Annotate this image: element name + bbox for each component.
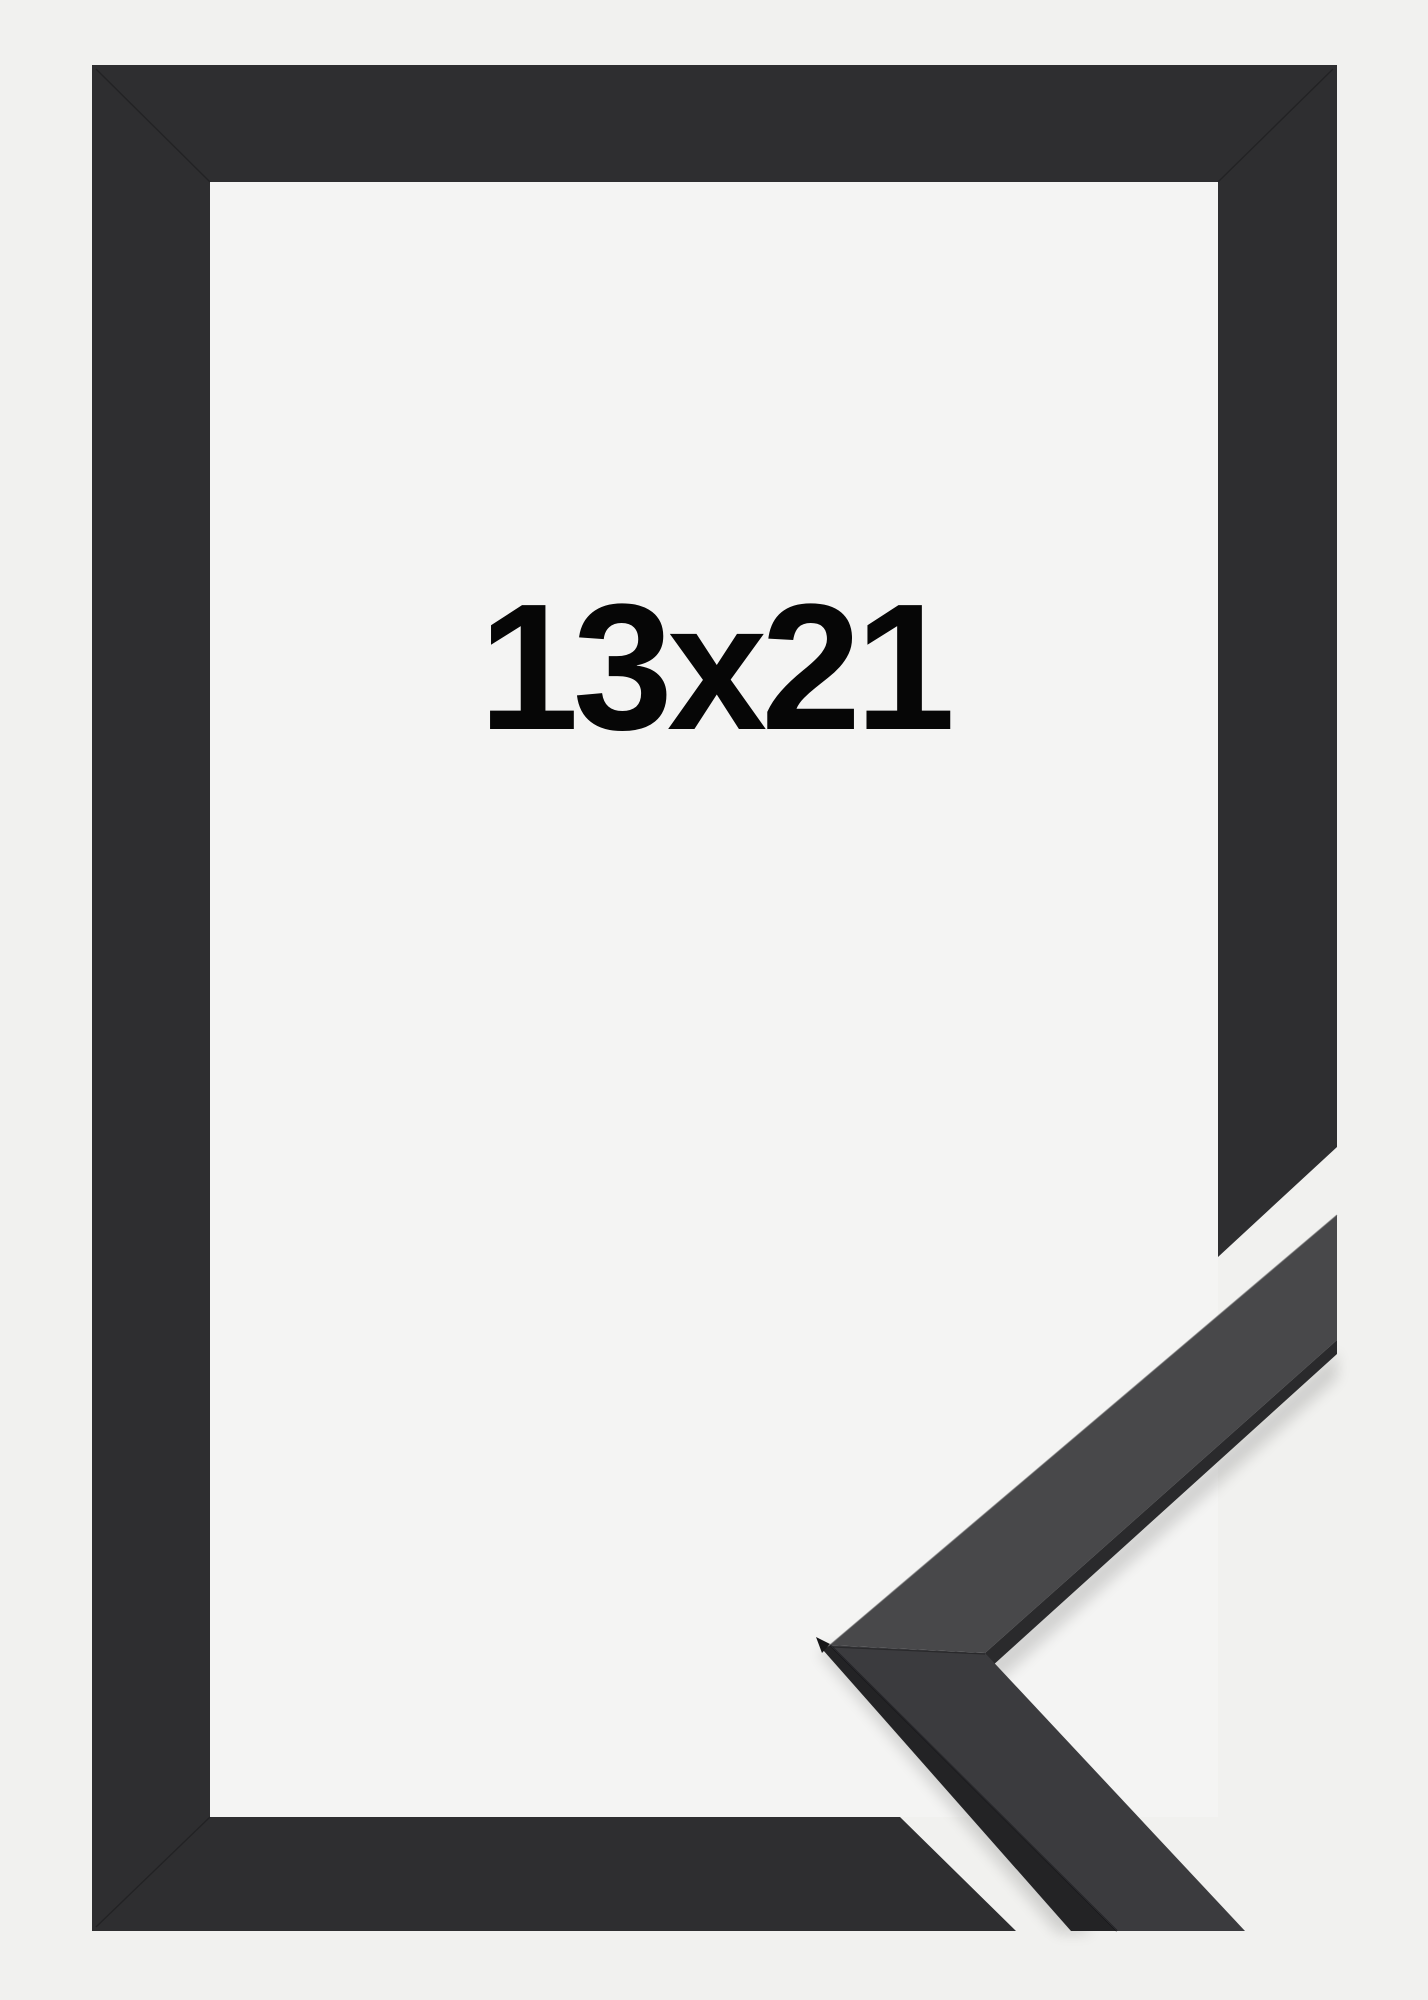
product-image-picture-frame: 13x21 — [0, 0, 1428, 2000]
frame-illustration — [0, 0, 1428, 2000]
size-label: 13x21 — [210, 578, 1218, 758]
